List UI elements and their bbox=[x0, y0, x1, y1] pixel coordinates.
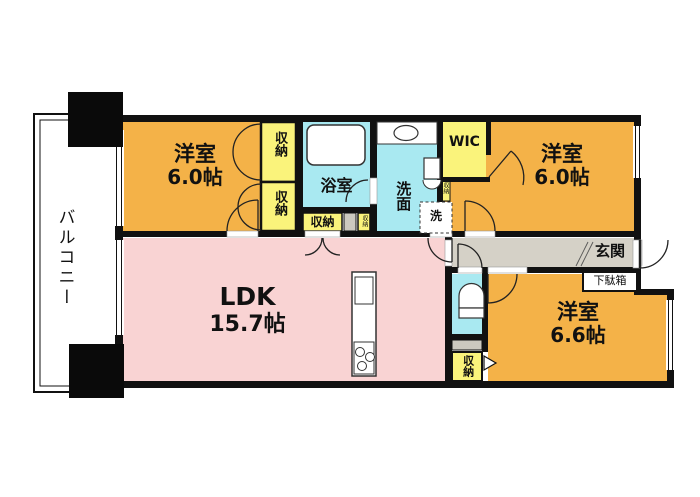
bedroom-top-left-label: 洋室 6.0帖 bbox=[135, 142, 255, 189]
shoe-cabinet-label: 下駄箱 bbox=[583, 275, 637, 288]
vanity-sink-icon bbox=[377, 122, 437, 144]
window-bedroom-right bbox=[633, 126, 642, 178]
bedroom-bottom-right-name: 洋室 bbox=[518, 300, 638, 324]
floorplan-canvas: バルコニー 洋室 6.0帖 洋室 6.0帖 洋室 6.6帖 LDK 15.7帖 … bbox=[0, 0, 700, 497]
closet-toilet-col-label: 収納 bbox=[461, 355, 474, 377]
ldk-label: LDK 15.7帖 bbox=[170, 283, 325, 337]
bedroom-top-right-name: 洋室 bbox=[502, 142, 622, 166]
pillar-top bbox=[68, 92, 123, 147]
bedroom-top-right-size: 6.0帖 bbox=[502, 166, 622, 189]
strip-gray-box bbox=[344, 213, 356, 231]
balcony-label: バルコニー bbox=[54, 175, 74, 340]
ldk-size: 15.7帖 bbox=[170, 312, 325, 337]
bedroom-bottom-right-label: 洋室 6.6帖 bbox=[518, 300, 638, 347]
toilet-gray-box bbox=[452, 340, 482, 350]
bedroom-top-right-label: 洋室 6.0帖 bbox=[502, 142, 622, 189]
washroom-label: 洗面 bbox=[394, 168, 411, 223]
bathtub-icon bbox=[307, 125, 365, 165]
toilet-icon bbox=[459, 284, 484, 319]
front-door bbox=[640, 240, 668, 268]
bedroom-bottom-right-size: 6.6帖 bbox=[518, 324, 638, 347]
pillar-bottom bbox=[69, 344, 124, 398]
bathroom-label: 浴室 bbox=[303, 177, 370, 195]
window-bedroom-bottom-right bbox=[666, 300, 675, 370]
closet-2-label: 収納 bbox=[271, 190, 286, 216]
washroom-cabinet-icon bbox=[424, 158, 440, 179]
closet-strip-label: 収納 bbox=[303, 216, 342, 230]
entrance-label: 玄関 bbox=[584, 243, 636, 260]
laundry-label: 洗 bbox=[420, 210, 452, 224]
closet-1-label: 収納 bbox=[271, 131, 286, 157]
closet-strip-narrow-label: 収納 bbox=[360, 215, 367, 227]
ldk-name: LDK bbox=[170, 283, 325, 312]
window-ldk bbox=[114, 240, 124, 335]
bedroom-top-left-name: 洋室 bbox=[135, 142, 255, 166]
kitchen-counter-icon bbox=[352, 272, 376, 376]
closet-tiny-label: 収納 bbox=[441, 182, 448, 194]
bedroom-top-left-size: 6.0帖 bbox=[135, 166, 255, 189]
wic-label: WIC bbox=[443, 134, 486, 150]
